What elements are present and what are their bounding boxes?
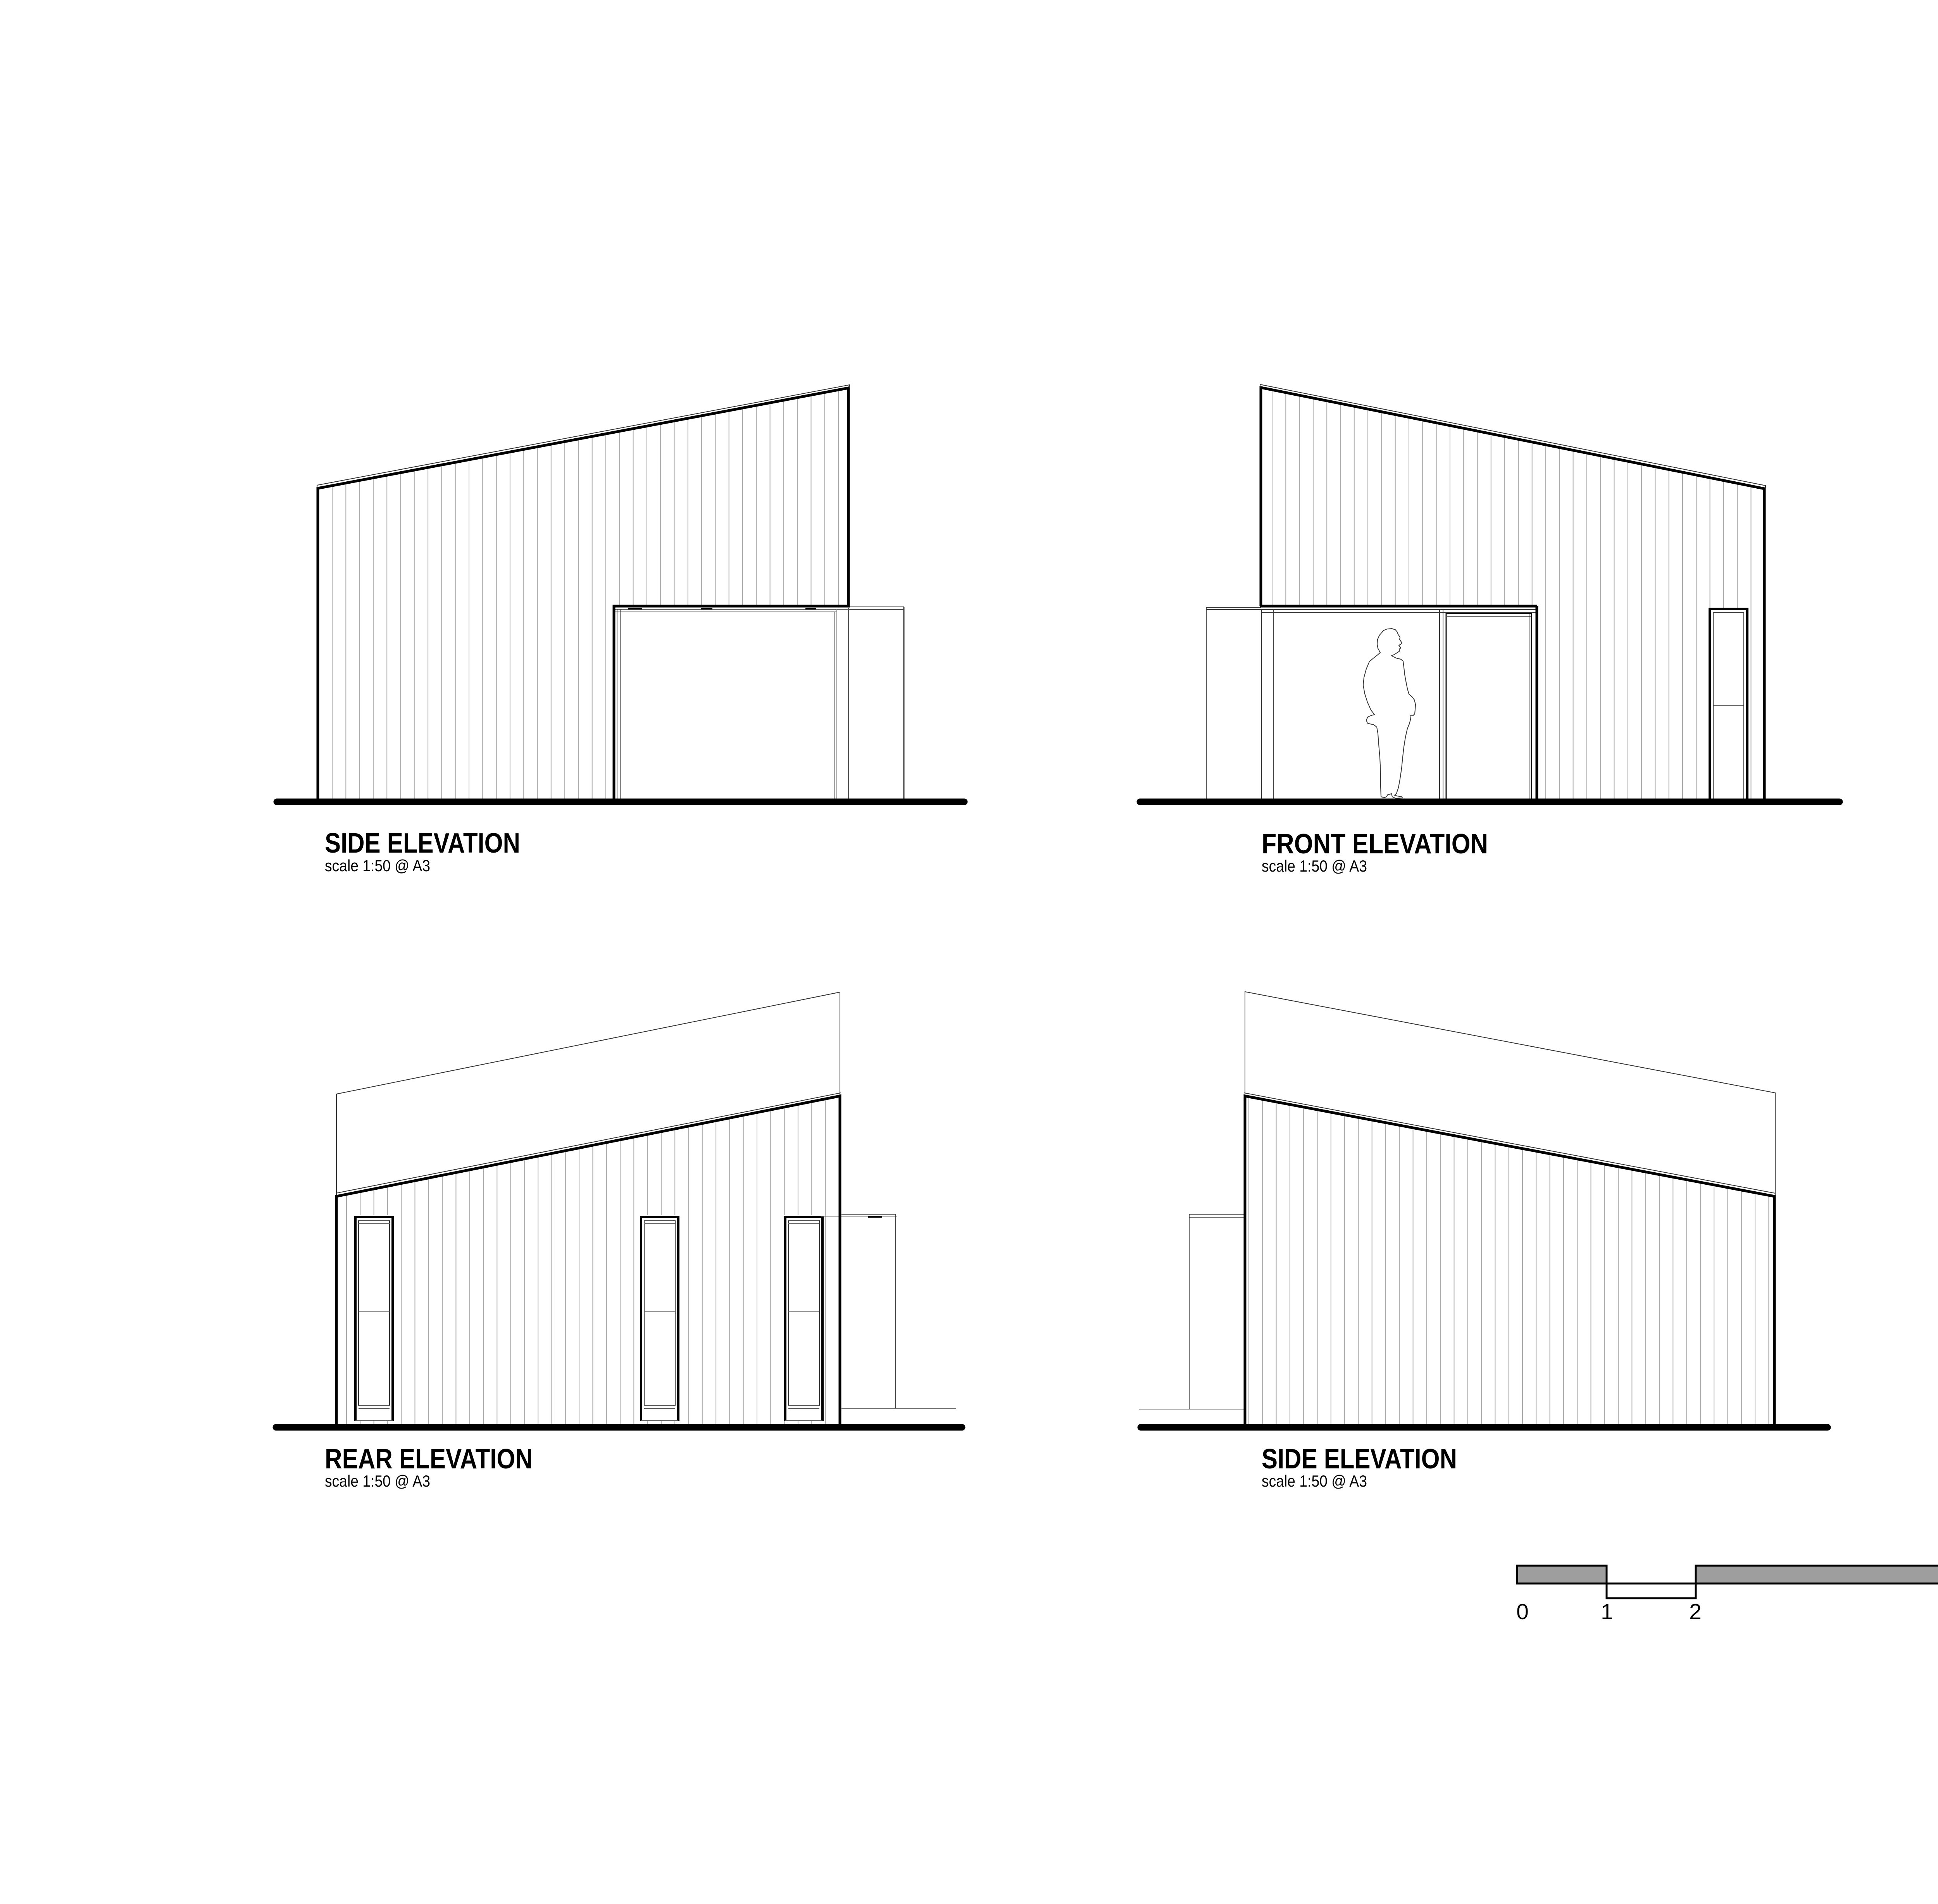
svg-text:scale 1:50 @ A3: scale 1:50 @ A3 xyxy=(325,1472,430,1490)
svg-text:scale 1:50 @ A3: scale 1:50 @ A3 xyxy=(1262,1472,1367,1490)
svg-text:FRONT ELEVATION: FRONT ELEVATION xyxy=(1262,829,1488,860)
svg-text:REAR ELEVATION: REAR ELEVATION xyxy=(325,1444,533,1475)
svg-text:scale 1:50 @ A3: scale 1:50 @ A3 xyxy=(325,856,430,875)
svg-text:SIDE ELEVATION: SIDE ELEVATION xyxy=(1262,1444,1457,1475)
svg-text:2: 2 xyxy=(1689,1599,1702,1624)
svg-text:scale 1:50 @ A3: scale 1:50 @ A3 xyxy=(1262,857,1367,875)
svg-text:SIDE ELEVATION: SIDE ELEVATION xyxy=(325,828,520,859)
svg-text:1: 1 xyxy=(1601,1599,1613,1624)
svg-text:0: 0 xyxy=(1516,1599,1529,1624)
